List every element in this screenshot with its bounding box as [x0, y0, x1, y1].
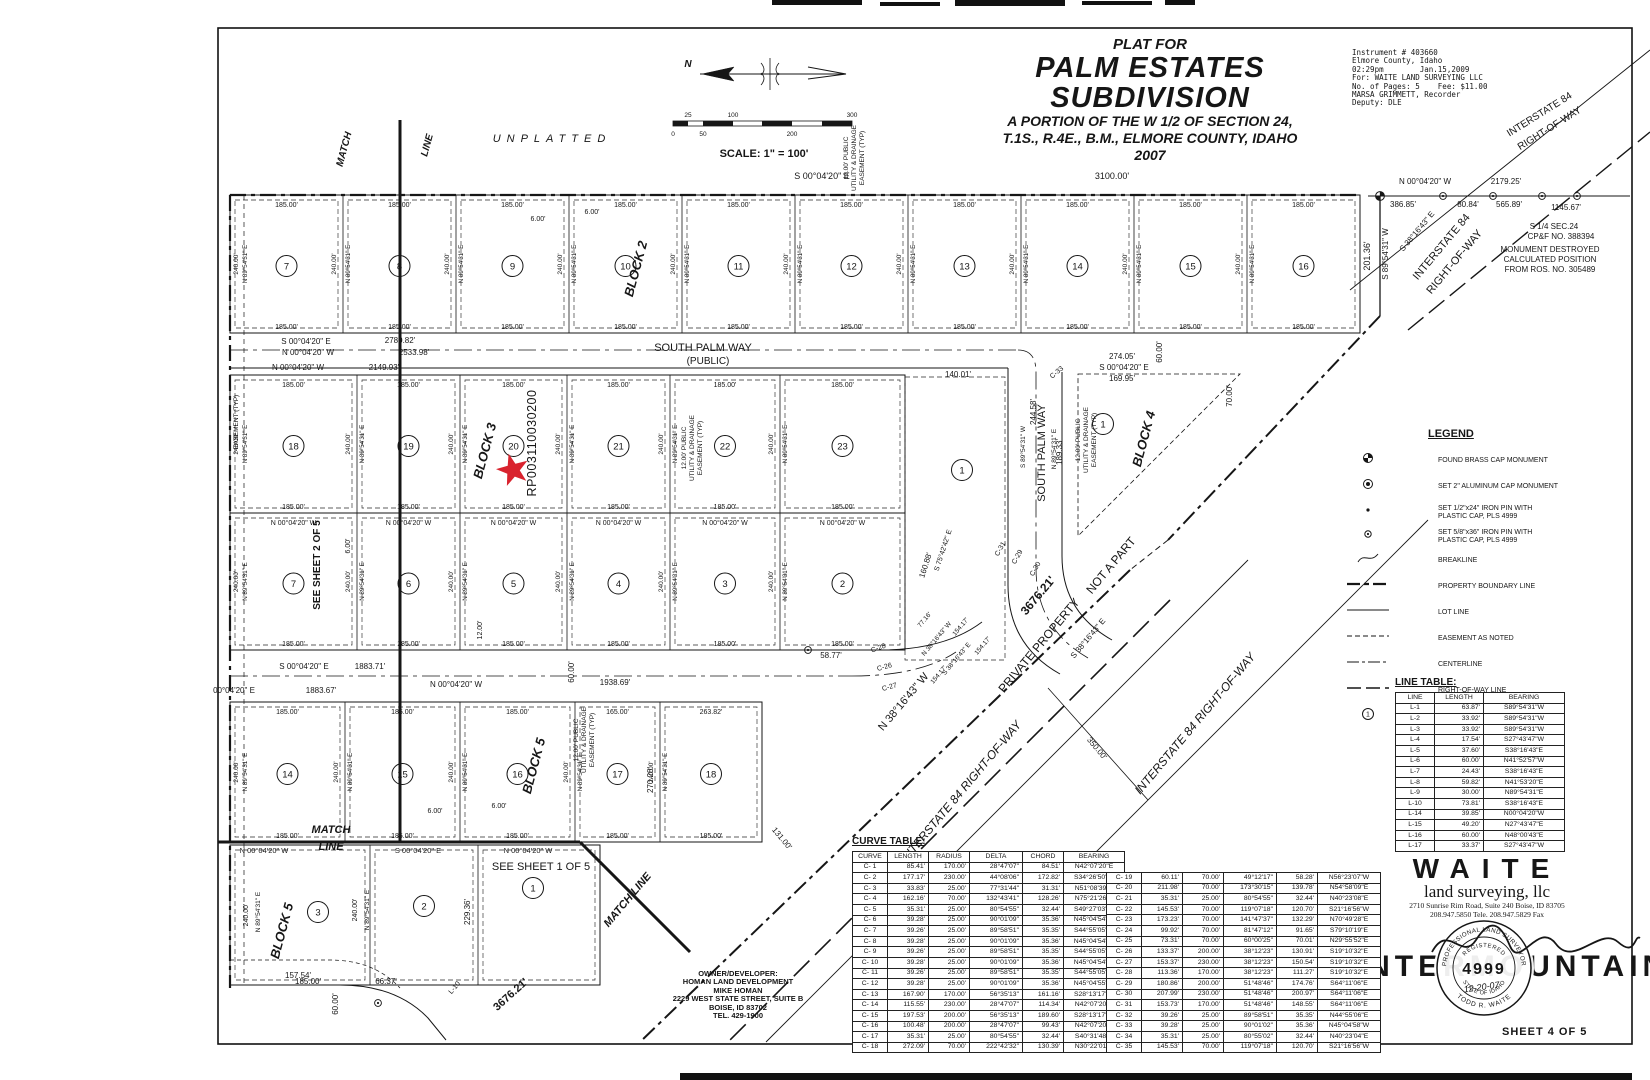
svg-text:1: 1: [1366, 712, 1370, 719]
annotation: 77.16': [917, 611, 934, 629]
table-cell: C- 24: [1107, 925, 1142, 936]
annotation: 386.85': [1390, 200, 1416, 209]
aluminum-cap-icon: [1346, 476, 1390, 492]
annotation: C-33: [1049, 365, 1065, 380]
table-row: C- 4162.16'70.00'132°43'41"128.26'N75°21…: [853, 894, 1125, 905]
lot-number: 9: [510, 261, 515, 272]
table-cell: 115.55': [888, 1000, 929, 1011]
table-cell: S27°43'47"W: [1484, 841, 1565, 852]
table-row: C- 14115.55'230.00'28°47'07"114.34'N42°0…: [853, 1000, 1125, 1011]
table-cell: 73.31': [1142, 936, 1183, 947]
table-cell: 32.44': [1277, 894, 1318, 905]
owner-line: TEL. 429-1900: [648, 1012, 828, 1020]
table-row: C- 30207.99'230.00'51°48'46"200.97'S64°1…: [1107, 989, 1381, 1000]
table-cell: 17.54': [1435, 735, 1484, 746]
table-cell: 33.92': [1435, 724, 1484, 735]
lot-bearing: N 89°54'31" E: [242, 753, 249, 792]
table-cell: 44°08'06": [970, 873, 1023, 884]
table-cell: 24.43': [1435, 767, 1484, 778]
table-cell: 51°48'46": [1224, 1000, 1277, 1011]
lot-dimension: 185.00': [275, 202, 298, 209]
monument-icon: [807, 649, 809, 651]
lot-number: 21: [613, 441, 624, 452]
lot-dimension: 185.00': [607, 504, 630, 511]
table-cell: 28°47'07": [970, 1021, 1023, 1032]
table-cell: 272.09': [888, 1042, 929, 1053]
lot-dimension: 240.00': [783, 253, 790, 274]
table-cell: C- 13: [853, 989, 888, 1000]
table-cell: 39.28': [888, 936, 929, 947]
legend-item-label: SET 5/8"x36" IRON PIN WITH PLASTIC CAP, …: [1438, 529, 1532, 545]
lot-dimension: 185.00': [714, 504, 737, 511]
table-cell: 35.36': [1023, 915, 1064, 926]
legend-item: SET 1/2"x24" IRON PIN WITH PLASTIC CAP, …: [1346, 502, 1601, 523]
annotation: EASEMENT (TYP): [1091, 413, 1098, 467]
scan-noise-bottom: [680, 1073, 1632, 1080]
table-row: C- 3339.28'25.00'90°01'02"35.36'N45°04'5…: [1107, 1021, 1381, 1032]
lot-dimension: 240.00': [1122, 253, 1129, 274]
table-row: C- 739.26'25.00'89°58'51"35.35'S44°55'05…: [853, 926, 1125, 937]
annotation: SOUTH PALM WAY: [654, 342, 752, 354]
annotation: NOT A PART: [1083, 534, 1139, 597]
legend-item-label: SET 2" ALUMINUM CAP MONUMENT: [1438, 483, 1558, 491]
table-cell: N41°52'57"W: [1484, 756, 1565, 767]
annotation: S 89°54'31" W: [1019, 425, 1027, 468]
lot-number: 14: [1072, 261, 1083, 272]
lot-dimension: 240.00': [233, 571, 240, 592]
table-cell: C- 18: [853, 1042, 888, 1053]
scale-bar-segment: [703, 121, 733, 126]
table-row: C- 1960.11'70.00'49°12'17"58.28'N56°23'0…: [1107, 873, 1381, 884]
table-cell: 90°01'09": [970, 957, 1023, 968]
lot-dimension: 185.00': [727, 324, 750, 331]
table-cell: 70.00': [1183, 1042, 1224, 1053]
table-cell: C- 32: [1107, 1010, 1142, 1021]
legend-item-label: SET 1/2"x24" IRON PIN WITH PLASTIC CAP, …: [1438, 505, 1532, 521]
table-row: C- 839.28'25.00'90°01'09"35.36'N45°04'54…: [853, 936, 1125, 947]
table-cell: 35.36': [1277, 1021, 1318, 1032]
lot-bearing: N 89°54'31" E: [569, 425, 576, 464]
lot-bearing: N 89°54'31" E: [672, 562, 679, 601]
lot-dimension: 185.00': [282, 382, 305, 389]
lot-dimension: N 00°04'20" W: [386, 519, 432, 527]
annotation: S 00°04'20" E: [279, 662, 328, 671]
annotation: CALCULATED POSITION: [1504, 255, 1597, 264]
table-cell: C- 17: [853, 1032, 888, 1043]
annotation: S 00°04'20" E: [281, 337, 330, 346]
annotation: 1938.69': [600, 678, 631, 687]
table-cell: 99.92': [1142, 925, 1183, 936]
table-row: L-333.92'S89°54'31"W: [1396, 724, 1565, 735]
table-row: L-1439.85'N00°04'20"W: [1396, 809, 1565, 820]
legend-item-label: BREAKLINE: [1438, 557, 1477, 565]
lot-bearing: N 89°54'31" E: [672, 425, 679, 464]
table-cell: N89°54'31"E: [1484, 788, 1565, 799]
parcel-code: RP003110030200: [525, 390, 539, 497]
table-row: C- 20211.98'70.00'173°30'15"139.78'N54°5…: [1107, 883, 1381, 894]
table-cell: 25.00': [1183, 1021, 1224, 1032]
table-cell: 35.31': [1142, 1031, 1183, 1042]
table-row: C- 1139.26'25.00'89°58'51"35.35'S44°55'0…: [853, 968, 1125, 979]
table-row: C- 26133.37'200.00'38°12'23"130.91'S19°1…: [1107, 947, 1381, 958]
annotation: S 00°04'20" E: [1099, 363, 1148, 372]
table-cell: C- 14: [853, 1000, 888, 1011]
table-cell: C- 35: [1107, 1042, 1142, 1053]
table-cell: 32.44': [1277, 1031, 1318, 1042]
table-row: C- 22145.53'70.00'119°07'18"120.70'S21°1…: [1107, 904, 1381, 915]
table-cell: 170.00': [1183, 1000, 1224, 1011]
right-of-way-line-icon: [1346, 680, 1390, 696]
annotation: 6.00': [531, 216, 546, 223]
table-cell: L-8: [1396, 777, 1435, 788]
curve-table-left: CURVE TABLE: CURVELENGTHRADIUSDELTACHORD…: [852, 836, 1125, 1053]
table-cell: 25.00': [929, 957, 970, 968]
band-block-3-south: [230, 513, 905, 650]
table-cell: S89°54'31"W: [1484, 724, 1565, 735]
table-cell: 132.29': [1277, 915, 1318, 926]
table-cell: L-3: [1396, 724, 1435, 735]
table-row: L-1073.81'S38°16'43"E: [1396, 798, 1565, 809]
lot-dimension: 185.00': [276, 709, 299, 716]
annotation: 12.00' PUBLIC: [573, 718, 580, 761]
stamp-number: 4999: [1462, 961, 1506, 978]
table-cell: N44°55'06"E: [1318, 1010, 1381, 1021]
table-header: DELTA: [970, 852, 1023, 863]
lot-line-icon: [1346, 602, 1390, 618]
table-cell: N48°00'43"E: [1484, 830, 1565, 841]
table-cell: 33.83': [888, 883, 929, 894]
annotation: S 1/4 SEC.24: [1530, 222, 1579, 231]
table-cell: 60.11': [1142, 873, 1183, 884]
annotation: LINE: [419, 133, 436, 158]
lot-dimension: 185.00': [502, 382, 525, 389]
table-cell: 153.37': [1142, 957, 1183, 968]
line-table: LINE TABLE: LINELENGTHBEARINGL-163.87'S8…: [1395, 677, 1565, 852]
annotation: 2179.25': [1491, 177, 1522, 186]
table-cell: 89°58'51": [1224, 1010, 1277, 1021]
table-cell: L-2: [1396, 714, 1435, 725]
legend-item: EASEMENT AS NOTED: [1346, 628, 1601, 649]
lot-dimension: 240.00': [768, 571, 775, 592]
annotation: 12.00' PUBLIC: [843, 136, 850, 179]
title-block: PLAT FOR PALM ESTATES SUBDIVISION A PORT…: [950, 36, 1350, 164]
table-cell: 141°47'37": [1224, 915, 1277, 926]
lot-dimension: N 00°04'20" W: [702, 519, 748, 527]
lot-dimension: 185.00': [276, 833, 299, 840]
table-cell: 207.99': [1142, 989, 1183, 1000]
lot-number: 5: [511, 579, 516, 590]
lot-dimension: 240.00': [1009, 253, 1016, 274]
lot-dimension: 240.00': [555, 571, 562, 592]
annotation: 3676.21': [1018, 573, 1059, 618]
annotation: MONUMENT DESTROYED: [1501, 245, 1600, 254]
table-cell: 70.00': [929, 1042, 970, 1053]
table-cell: 173°30'15": [1224, 883, 1277, 894]
brass-cap-icon: [1376, 196, 1380, 200]
table-cell: 35.35': [1023, 947, 1064, 958]
annotation: C-27: [881, 682, 898, 693]
table-cell: 25.00': [929, 968, 970, 979]
north-arrow-icon: [808, 67, 846, 79]
table-cell: 91.65': [1277, 925, 1318, 936]
title-subline-2: T.1S., R.4E., B.M., ELMORE COUNTY, IDAHO: [950, 130, 1350, 147]
annotation: UTILITY & DRAINAGE: [1083, 406, 1090, 473]
lot-number: 18: [288, 441, 299, 452]
table-cell: L-9: [1396, 788, 1435, 799]
table-row: C- 3435.31'25.00'80°55'02"32.44'N40°23'0…: [1107, 1031, 1381, 1042]
lot-dimension: 185.00': [607, 382, 630, 389]
table-row: C- 1039.28'25.00'90°01'09"35.36'N45°04'5…: [853, 957, 1125, 968]
table-header: BEARING: [1484, 693, 1565, 704]
annotation: N 00°04'20" W: [1399, 177, 1451, 186]
lot-bearing: N 89°54'31" E: [242, 425, 249, 464]
lot-dimension: 185.00': [727, 202, 750, 209]
annotation: N 00°04'20" W: [504, 846, 554, 855]
annotation: 58.77': [820, 651, 842, 660]
table-cell: 56°35'13": [970, 1010, 1023, 1021]
lot-dimension: 185.00': [275, 324, 298, 331]
table-cell: L-4: [1396, 735, 1435, 746]
table-row: L-660.00'N41°52'57"W: [1396, 756, 1565, 767]
table-cell: 148.55': [1277, 1000, 1318, 1011]
lot-dimension: 185.00': [501, 324, 524, 331]
lot-dimension: N 00°04'20" W: [596, 519, 642, 527]
table-cell: 25.00': [929, 947, 970, 958]
annotation: 240.00': [352, 899, 359, 922]
table-header: LENGTH: [1435, 693, 1484, 704]
lot-bearing: N 89°54'31" E: [1136, 245, 1143, 284]
annotation: 240.00': [243, 904, 250, 927]
lot-number: 16: [512, 769, 523, 780]
table-cell: 35.31': [888, 904, 929, 915]
table-cell: 39.28': [888, 957, 929, 968]
table-cell: 139.78': [1277, 883, 1318, 894]
table-cell: 130.91': [1277, 947, 1318, 958]
annotation: 12.00' PUBLIC: [681, 426, 688, 469]
annotation: 157.54': [285, 971, 311, 980]
lot-dimension: 185.00': [700, 833, 723, 840]
lot-dimension: 185.00': [391, 709, 414, 716]
table-row: C- 29180.86'200.00'51°48'46"174.76'S64°1…: [1107, 978, 1381, 989]
table-cell: 51°48'46": [1224, 989, 1277, 1000]
plat-for-label: PLAT FOR: [950, 36, 1350, 53]
table-cell: L-6: [1396, 756, 1435, 767]
lot-bearing: N 89°54'31" E: [462, 425, 469, 464]
owner-developer-block: OWNER/DEVELOPER:HOMAN LAND DEVELOPMENTMI…: [648, 970, 828, 1020]
surveyor-name: WAITE: [1350, 856, 1624, 882]
annotation: S 00°04'20" E: [395, 846, 441, 855]
table-cell: 70.00': [1183, 936, 1224, 947]
table-cell: C- 22: [1107, 904, 1142, 915]
table-cell: S19°10'32"E: [1318, 947, 1381, 958]
table-cell: 70.01': [1277, 936, 1318, 947]
annotation: S 00°04'20" E: [794, 171, 850, 181]
lot-dimension: 165.00': [606, 709, 629, 716]
table-row: C- 28113.36'170.00'38°12'23"111.27'S19°1…: [1107, 968, 1381, 979]
annotation: 229.36': [463, 899, 472, 925]
lot-number: 2: [421, 901, 426, 912]
annotation: 60.00': [567, 661, 576, 683]
annotation: 270.28': [646, 767, 655, 793]
survey-table: C- 1960.11'70.00'49°12'17"58.28'N56°23'0…: [1106, 872, 1381, 1053]
table-cell: 77°31'44": [970, 883, 1023, 894]
table-row: C- 16100.48'200.00'28°47'07"99.43'N42°07…: [853, 1021, 1125, 1032]
table-cell: S38°16'43"E: [1484, 798, 1565, 809]
table-cell: C- 12: [853, 979, 888, 990]
table-cell: C- 4: [853, 894, 888, 905]
annotation: 6.00': [428, 808, 443, 815]
lot-dimension: 240.00': [233, 253, 240, 274]
lot-bearing: N 89°54'31" E: [910, 245, 917, 284]
annotation: CP&F NO. 388394: [1528, 232, 1595, 241]
table-cell: 38°12'23": [1224, 947, 1277, 958]
table-cell: 37.60': [1435, 745, 1484, 756]
lot-dimension: N 00°04'20" W: [820, 519, 866, 527]
annotation: 6.00': [345, 539, 352, 554]
table-cell: 81°47'12": [1224, 925, 1277, 936]
lot-dimension: 240.00': [1235, 253, 1242, 274]
easement-line-icon: [1346, 628, 1390, 644]
table-cell: C- 29: [1107, 978, 1142, 989]
table-cell: 80°54'55": [970, 904, 1023, 915]
lot-number: 17: [612, 769, 623, 780]
table-cell: 230.00': [1183, 957, 1224, 968]
table-cell: 162.16': [888, 894, 929, 905]
table-row: L-1733.37'S27°43'47"W: [1396, 841, 1565, 852]
table-cell: N29°55'52"E: [1318, 936, 1381, 947]
annotation: S 38°16'43" E: [1398, 210, 1437, 254]
annotation: SOUTH PALM WAY: [1036, 404, 1048, 502]
table-row: C- 2135.31'25.00'80°54'55"32.44'N40°23'0…: [1107, 894, 1381, 905]
annotation: SCALE: 1" = 100': [720, 148, 809, 160]
recording-stamp: Instrument # 403660Elmore County, Idaho0…: [1352, 49, 1487, 108]
table-cell: 230.00': [1183, 989, 1224, 1000]
scan-noise: [955, 0, 1065, 6]
table-cell: 100.48': [888, 1021, 929, 1032]
lot-bearing: N 89°54'31" E: [1249, 245, 1256, 284]
monument-icon: [1576, 195, 1578, 197]
table-cell: N00°04'20"W: [1484, 809, 1565, 820]
table-cell: 145.53': [1142, 1042, 1183, 1053]
table-cell: C- 3: [853, 883, 888, 894]
table-cell: 90°01'09": [970, 936, 1023, 947]
surveyor-address: 2710 Sunrise Rim Road, Suite 240 Boise, …: [1350, 901, 1624, 910]
table-header: BEARING: [1064, 852, 1125, 863]
highlight-star-icon: [496, 454, 527, 486]
easement-line: [375, 850, 473, 980]
table-cell: 128.26': [1023, 894, 1064, 905]
table-row: C- 3239.26'25.00'89°58'51"35.35'N44°55'0…: [1107, 1010, 1381, 1021]
table-cell: N27°43'47"E: [1484, 820, 1565, 831]
table-cell: 35.31': [1142, 894, 1183, 905]
legend-item-label: FOUND BRASS CAP MONUMENT: [1438, 457, 1548, 465]
table-cell: 113.36': [1142, 968, 1183, 979]
legend-item-label: LOT LINE: [1438, 609, 1469, 617]
table-cell: 161.16': [1023, 989, 1064, 1000]
scan-noise: [1165, 0, 1195, 5]
table-cell: S27°43'47"W: [1484, 735, 1565, 746]
table-cell: 70.00': [1183, 904, 1224, 915]
table-cell: 180.86': [1142, 978, 1183, 989]
annotation: N 38°16'43" W: [876, 670, 932, 733]
table-cell: 90°01'09": [970, 979, 1023, 990]
table-cell: L-15: [1396, 820, 1435, 831]
table-cell: 25.00': [929, 936, 970, 947]
lot-bearing: N 89°54'31" E: [782, 562, 789, 601]
brass-cap-icon: [1380, 192, 1384, 196]
table-cell: L-10: [1396, 798, 1435, 809]
table-cell: 35.36': [1023, 979, 1064, 990]
lot-dimension: 240.00': [896, 253, 903, 274]
annotation: C-31: [994, 541, 1008, 558]
lot-bearing: N 89°54'31" E: [684, 245, 691, 284]
annotation: 60.00': [331, 993, 340, 1015]
annotation: 154.17': [973, 636, 992, 657]
lot-dimension: 263.82': [700, 709, 723, 716]
annotation: 100: [728, 112, 739, 119]
lot-number-icon: 1: [1346, 706, 1390, 722]
lot-dimension: 185.00': [614, 324, 637, 331]
table-row: C- 1735.31'25.00'80°54'55"32.44'S40°31'4…: [853, 1032, 1125, 1043]
table-row: C- 535.31'25.00'80°54'55"32.44'S49°27'03…: [853, 904, 1125, 915]
legend-item-label: CENTERLINE: [1438, 661, 1482, 669]
table-cell: C- 6: [853, 915, 888, 926]
table-cell: C- 20: [1107, 883, 1142, 894]
annotation: 12.00' PUBLIC: [1075, 418, 1082, 461]
band-block-5-north: [230, 702, 762, 842]
annotation: N 00°04'20" W: [240, 846, 290, 855]
table-cell: 25.00': [929, 1032, 970, 1043]
surveyor-tagline: land surveying, llc: [1350, 882, 1624, 901]
table-cell: 120.70': [1277, 904, 1318, 915]
table-cell: 32.44': [1023, 1032, 1064, 1043]
table-cell: 222°42'32": [970, 1042, 1023, 1053]
table-cell: N45°04'58"W: [1318, 1021, 1381, 1032]
table-row: C- 1239.28'25.00'90°01'09"35.36'N45°04'5…: [853, 979, 1125, 990]
lot-number: 1: [1100, 419, 1105, 430]
table-cell: 200.97': [1277, 989, 1318, 1000]
table-cell: 145.53': [1142, 904, 1183, 915]
legend-item: PROPERTY BOUNDARY LINE: [1346, 576, 1601, 597]
table-cell: 25.00': [929, 915, 970, 926]
table-cell: L-16: [1396, 830, 1435, 841]
lot-dimension: 240.00': [555, 433, 562, 454]
lot-dimension: 185.00': [502, 641, 525, 648]
lot-dimension: 240.00': [444, 253, 451, 274]
table-cell: 28°47'07": [970, 1000, 1023, 1011]
annotation: MATCH: [335, 130, 355, 168]
legend-item: CENTERLINE: [1346, 654, 1601, 675]
table-cell: 73.81': [1435, 798, 1484, 809]
lot-dimension: 185.00': [1292, 202, 1315, 209]
annotation: 3100.00': [1095, 171, 1130, 181]
table-cell: 174.76': [1277, 978, 1318, 989]
table-cell: 59.82': [1435, 777, 1484, 788]
table-cell: 38°12'23": [1224, 957, 1277, 968]
table-cell: C- 33: [1107, 1021, 1142, 1032]
table-cell: 39.85': [1435, 809, 1484, 820]
table-cell: 25.00': [929, 883, 970, 894]
annotation: UNPLATTED: [493, 133, 612, 145]
table-row: C- 333.83'25.00'77°31'44"31.31'N51°08'39…: [853, 883, 1125, 894]
lot-bearing: N 89°54'31" E: [797, 245, 804, 284]
table-cell: 49°12'17": [1224, 873, 1277, 884]
lot-number: 3: [722, 579, 727, 590]
annotation: FROM ROS. NO. 305489: [1505, 265, 1596, 274]
band-block-3-north: [230, 375, 905, 513]
table-cell: 70.00': [929, 894, 970, 905]
table-cell: 25.00': [1183, 1031, 1224, 1042]
